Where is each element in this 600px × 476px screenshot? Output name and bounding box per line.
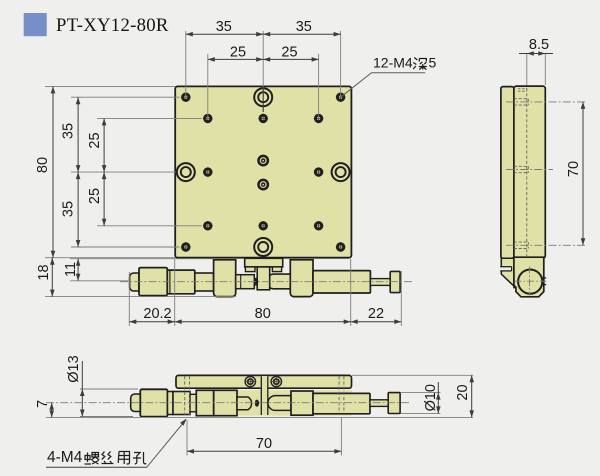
svg-text:35: 35 — [61, 201, 77, 217]
svg-text:35: 35 — [61, 123, 77, 139]
svg-text:25: 25 — [281, 44, 297, 60]
svg-text:35: 35 — [296, 19, 312, 35]
svg-text:5: 5 — [429, 54, 437, 70]
svg-text:80: 80 — [255, 306, 271, 322]
svg-text:11: 11 — [63, 262, 79, 277]
svg-text:Ø13: Ø13 — [66, 355, 82, 382]
svg-text:35: 35 — [216, 19, 232, 35]
svg-text:18: 18 — [36, 264, 52, 280]
svg-text:12-M4: 12-M4 — [373, 54, 413, 70]
svg-text:25: 25 — [230, 44, 246, 60]
svg-text:20.2: 20.2 — [143, 306, 171, 322]
svg-text:4-M4: 4-M4 — [47, 449, 83, 466]
svg-text:PT-XY12-80R: PT-XY12-80R — [56, 15, 169, 36]
svg-text:25: 25 — [87, 188, 103, 204]
svg-text:25: 25 — [87, 132, 103, 148]
svg-text:80: 80 — [35, 157, 51, 173]
svg-text:20: 20 — [455, 384, 471, 400]
svg-text:22: 22 — [368, 306, 384, 322]
svg-text:70: 70 — [256, 436, 272, 452]
svg-text:8.5: 8.5 — [529, 37, 549, 53]
svg-text:Ø10: Ø10 — [423, 384, 439, 411]
svg-text:70: 70 — [566, 161, 582, 177]
svg-text:7: 7 — [35, 400, 51, 408]
